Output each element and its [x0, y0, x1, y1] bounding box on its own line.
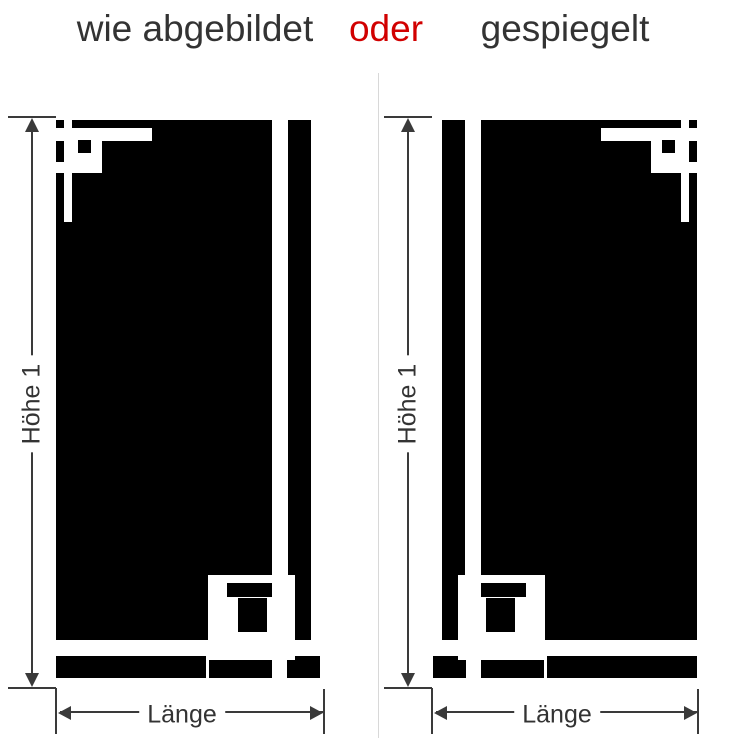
lock-handle-square [486, 598, 515, 632]
hinge-notch-cut [56, 162, 64, 173]
option-label-mirrored: gespiegelt [481, 9, 650, 49]
height-dimension-label: Höhe 1 [17, 356, 48, 453]
right-arrowhead [684, 706, 697, 720]
hinge-cut-strip [64, 120, 72, 222]
door-frame-strip [288, 120, 311, 640]
threshold-bar-left [547, 656, 697, 678]
door-panel [481, 120, 697, 640]
down-arrowhead [25, 673, 39, 687]
option-connector-oder: oder [349, 9, 423, 49]
hinge-cut-strip [681, 120, 689, 222]
door-panel [56, 120, 272, 640]
height-dimension-label: Höhe 1 [393, 356, 424, 453]
length-tick-right [323, 689, 325, 734]
length-dimension-label: Länge [514, 700, 600, 731]
height-tick-bottom [384, 687, 432, 689]
up-arrowhead [401, 118, 415, 132]
length-tick-left [431, 688, 433, 734]
lock-handle-bar [481, 583, 526, 597]
left-arrowhead [434, 706, 447, 720]
hinge-dot [78, 140, 91, 153]
right-arrowhead [310, 706, 323, 720]
threshold-bar-left [56, 656, 206, 678]
length-tick-left [55, 688, 57, 734]
door-silhouette-mirrored [433, 120, 697, 678]
hinge-notch-cut [689, 162, 697, 173]
height-tick-bottom [8, 687, 56, 689]
door-silhouette [56, 120, 320, 678]
length-tick-right [697, 689, 699, 734]
lock-handle-square [238, 598, 267, 632]
lock-handle-bar [227, 583, 272, 597]
hinge-dot [662, 140, 675, 153]
length-dimension-label: Länge [139, 700, 225, 731]
up-arrowhead [25, 118, 39, 132]
left-arrowhead [58, 706, 71, 720]
door-frame-strip [442, 120, 465, 640]
center-divider [378, 73, 379, 738]
product-option-diagram: wie abgebildet oder gespiegelt Höhe 1 [0, 0, 750, 750]
down-arrowhead [401, 673, 415, 687]
option-label-as-shown: wie abgebildet [77, 9, 314, 49]
